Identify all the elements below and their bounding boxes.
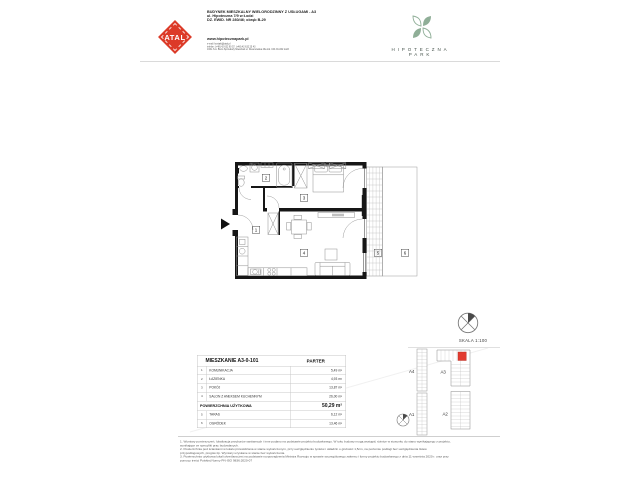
highlighted-unit <box>458 352 466 361</box>
plot-number: DZ. EWID. NR 280/46; obręb B-29 <box>207 18 487 22</box>
footnote-line: pomocy treści Polskiej Normy PN-ISO 9836… <box>180 459 502 463</box>
usable-area-label: POWIERZCHNIA UŻYTKOWA <box>198 401 291 410</box>
building-a4 <box>417 349 427 391</box>
table-row: 6 OGRÓDEK 13,46 m² <box>198 419 346 428</box>
header-divider <box>140 61 500 62</box>
garden-outline <box>383 167 418 276</box>
bathroom-fixtures <box>238 163 292 188</box>
apartment-walls <box>233 162 367 279</box>
usable-area-value: 50,29 m² <box>291 401 346 410</box>
hallway-closet <box>268 213 278 235</box>
scale-label: SKALA 1:100 <box>448 338 498 343</box>
header-text-block: BUDYNEK MIESZKALNY WIELORODZINNY Z USŁUG… <box>207 10 487 51</box>
leaves-icon <box>411 14 433 41</box>
table-header-row: MIESZKANIE A3-0-101 PARTER <box>198 356 346 367</box>
door-arcs <box>238 169 363 239</box>
north-compass-icon <box>397 414 409 426</box>
side-table <box>325 249 337 260</box>
kitchen-sink <box>253 270 258 275</box>
table-row: 5 TARAS 6,12 m² <box>198 410 346 419</box>
building-a4-label: A4 <box>409 369 415 374</box>
apartment-id: MIESZKANIE A3-0-101 <box>198 358 290 364</box>
website-link[interactable]: www.hipotecznapark.pl <box>207 37 487 42</box>
site-key-plan: A4 A1 A3 A2 <box>390 348 475 436</box>
windows <box>363 169 365 273</box>
hipoteczna-park-wordmark: HIPOTECZNA PARK <box>378 47 463 57</box>
bedroom-furniture <box>295 163 346 192</box>
table-row: 3 POKÓJ 13,87 m² <box>198 383 346 392</box>
compass-icon <box>455 311 481 337</box>
building-a3-label: A3 <box>441 370 447 375</box>
floor-name: PARTER <box>290 358 343 363</box>
terrace-grid <box>367 167 383 276</box>
building-a1 <box>417 393 427 435</box>
living-room-furniture <box>237 213 355 276</box>
floor-plan-sheet: ATAL BUDYNEK MIESZKALNY WIELORODZINNY Z … <box>0 0 640 480</box>
table-row: 1 KOMUNIKACJA 5,49 m² <box>198 366 346 375</box>
usable-area-row: POWIERZCHNIA UŻYTKOWA 50,29 m² <box>198 401 346 411</box>
building-a1-label: A1 <box>409 412 415 417</box>
footnotes-divider <box>178 436 500 437</box>
table-row: 4 SALON Z ANEKSEM KUCHENNYM 26,00 m² <box>198 392 346 401</box>
building-a2-label: A2 <box>443 412 449 417</box>
building-a2 <box>451 392 470 430</box>
area-table: MIESZKANIE A3-0-101 PARTER 1 KOMUNIKACJA… <box>197 355 346 428</box>
building-a3 <box>437 350 470 386</box>
footnotes: 1. Wymiary pomieszczeń, lokalizacja przy… <box>180 440 502 463</box>
apartment-floor-plan <box>215 135 430 300</box>
atal-logo-text: ATAL <box>157 33 193 42</box>
entrance-arrow-icon <box>221 219 230 230</box>
dining-table <box>292 220 307 234</box>
table-row: 2 ŁAZIENKA 4,93 m² <box>198 375 346 384</box>
